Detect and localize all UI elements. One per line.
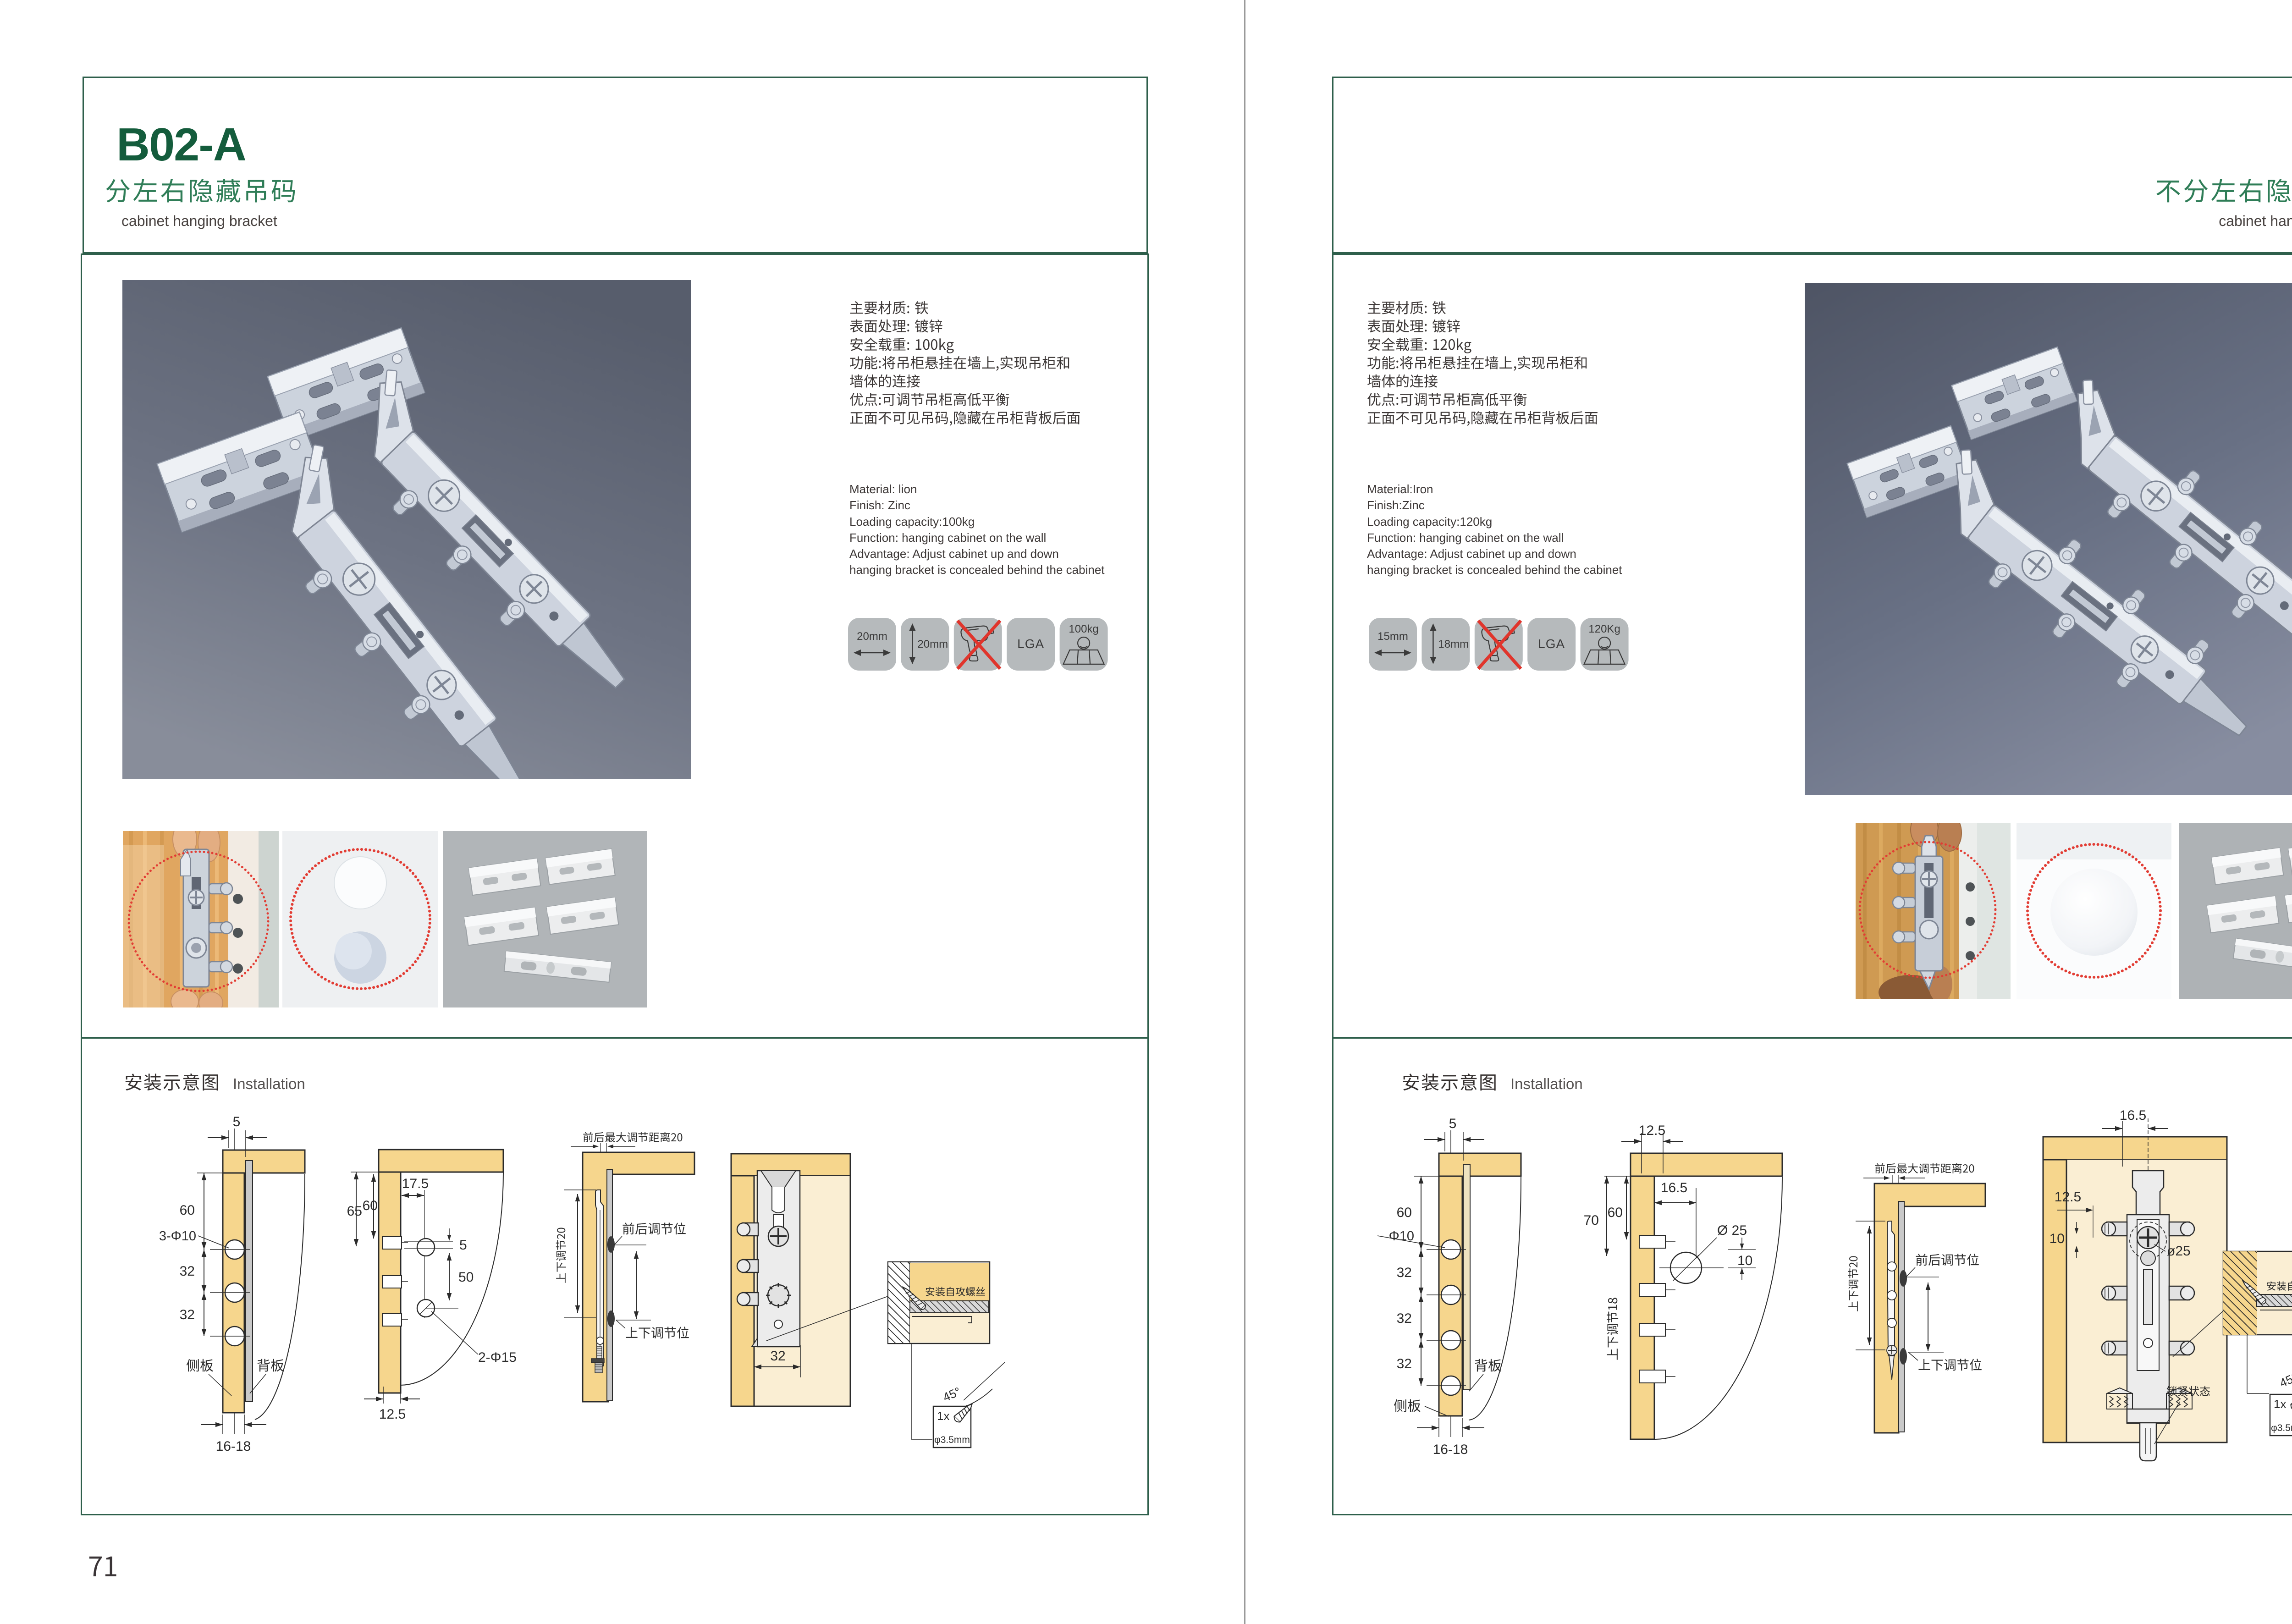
svg-text:60: 60 (1397, 1205, 1412, 1220)
svg-text:16.5: 16.5 (1661, 1180, 1687, 1195)
svg-text:16-18: 16-18 (1433, 1442, 1468, 1457)
svg-text:10: 10 (1737, 1253, 1752, 1268)
svg-text:16.5: 16.5 (2120, 1108, 2146, 1123)
svg-text:32: 32 (1397, 1311, 1412, 1326)
svg-text:32: 32 (1397, 1356, 1412, 1371)
svg-text:70: 70 (1584, 1213, 1599, 1228)
svg-text:5: 5 (1449, 1116, 1457, 1131)
svg-text:Ø 25: Ø 25 (1717, 1223, 1747, 1238)
svg-text:ø25: ø25 (2167, 1244, 2191, 1259)
svg-text:12.5: 12.5 (1639, 1123, 1665, 1138)
svg-text:10: 10 (2050, 1231, 2065, 1246)
svg-text:12.5: 12.5 (2055, 1189, 2081, 1205)
svg-text:60: 60 (1608, 1205, 1623, 1220)
svg-text:32: 32 (1397, 1265, 1412, 1280)
